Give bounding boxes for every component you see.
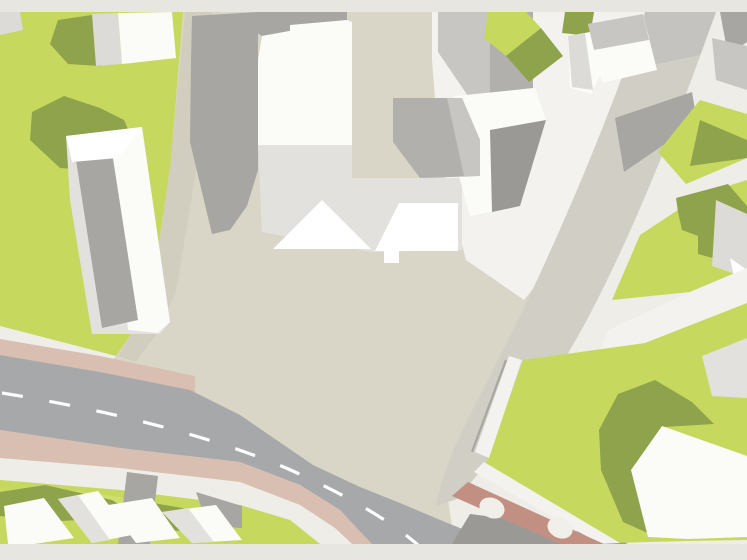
- bottom-frame-band: [0, 544, 747, 560]
- northwest-building: [118, 12, 176, 64]
- top-frame-band: [0, 0, 747, 12]
- complex-main-tower: [258, 20, 352, 145]
- map-canvas[interactable]: [0, 0, 747, 560]
- site-plan-svg: [0, 0, 747, 560]
- northwest-building-facet: [92, 13, 122, 66]
- complex-entrance-bump: [384, 251, 399, 263]
